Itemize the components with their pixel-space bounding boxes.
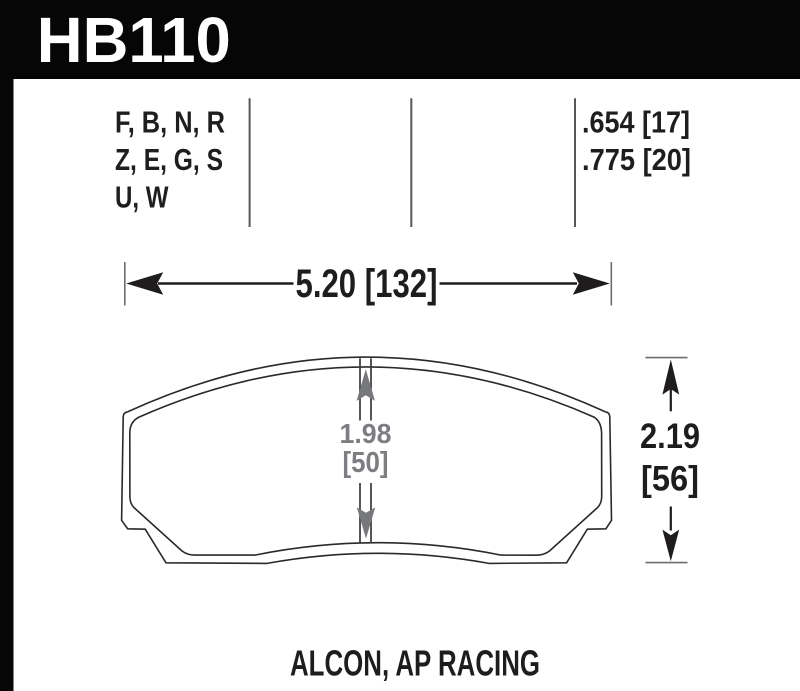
svg-text:ALCON, AP RACING: ALCON, AP RACING xyxy=(290,642,540,683)
svg-text:2.19: 2.19 xyxy=(640,416,700,456)
svg-text:HB110: HB110 xyxy=(37,4,231,76)
svg-text:.775 [20]: .775 [20] xyxy=(582,142,691,177)
svg-text:Z, E, G, S: Z, E, G, S xyxy=(115,142,223,177)
svg-text:[56]: [56] xyxy=(641,458,699,498)
svg-text:1.98: 1.98 xyxy=(340,418,392,449)
svg-text:5.20 [132]: 5.20 [132] xyxy=(296,262,438,306)
svg-text:U, W: U, W xyxy=(115,180,169,215)
svg-text:F, B, N, R: F, B, N, R xyxy=(115,104,225,139)
svg-text:[50]: [50] xyxy=(343,447,389,479)
svg-text:.654 [17]: .654 [17] xyxy=(582,104,690,139)
